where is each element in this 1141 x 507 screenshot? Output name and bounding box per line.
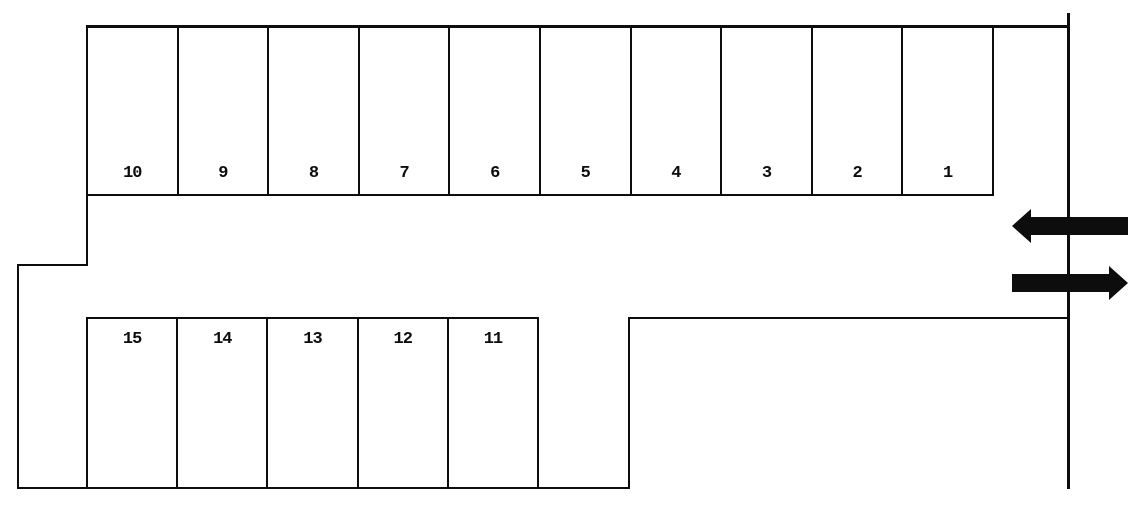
parking-stall-11: 11 xyxy=(447,319,537,487)
parking-stall-2: 2 xyxy=(811,28,902,194)
stall-number: 6 xyxy=(490,165,499,182)
stall-number: 14 xyxy=(213,331,231,348)
stall-number: 11 xyxy=(484,331,502,348)
stall-number: 3 xyxy=(762,165,771,182)
step-vertical-line xyxy=(628,317,630,489)
parking-stall-13: 13 xyxy=(266,319,356,487)
parking-stall-12: 12 xyxy=(357,319,447,487)
street-edge-line xyxy=(1067,13,1070,489)
lower-lane-boundary-line xyxy=(628,317,1069,319)
stall-number: 8 xyxy=(309,165,318,182)
right-arrow-shape xyxy=(1012,266,1128,300)
parking-stall-14: 14 xyxy=(176,319,266,487)
parking-stall-15: 15 xyxy=(88,319,176,487)
stall-number: 2 xyxy=(852,165,861,182)
parking-stall-3: 3 xyxy=(720,28,811,194)
stall-number: 12 xyxy=(394,331,412,348)
stall-number: 5 xyxy=(581,165,590,182)
stall-number: 15 xyxy=(123,331,141,348)
stall-row-top: 10 9 8 7 6 5 4 3 2 1 xyxy=(86,26,994,196)
parking-stall-9: 9 xyxy=(177,28,268,194)
left-arrow-shape xyxy=(1012,209,1128,243)
stall-number: 1 xyxy=(943,165,952,182)
parking-stall-1: 1 xyxy=(901,28,992,194)
parking-stall-8: 8 xyxy=(267,28,358,194)
stall-number: 7 xyxy=(399,165,408,182)
parking-stall-5: 5 xyxy=(539,28,630,194)
stall-number: 10 xyxy=(123,165,141,182)
stall-number: 13 xyxy=(303,331,321,348)
stall-number: 4 xyxy=(671,165,680,182)
parking-lot-diagram: 10 9 8 7 6 5 4 3 2 1 15 14 13 12 11 xyxy=(0,0,1141,507)
left-arrow-icon xyxy=(1012,208,1128,244)
left-stub-line xyxy=(86,194,88,266)
right-arrow-icon xyxy=(1012,265,1128,301)
left-boundary-line xyxy=(17,264,19,489)
notch-top-line xyxy=(17,264,88,266)
parking-stall-7: 7 xyxy=(358,28,449,194)
parking-stall-6: 6 xyxy=(448,28,539,194)
stall-row-bottom: 15 14 13 12 11 xyxy=(86,317,539,489)
parking-stall-10: 10 xyxy=(88,28,177,194)
parking-stall-4: 4 xyxy=(630,28,721,194)
stall-number: 9 xyxy=(218,165,227,182)
